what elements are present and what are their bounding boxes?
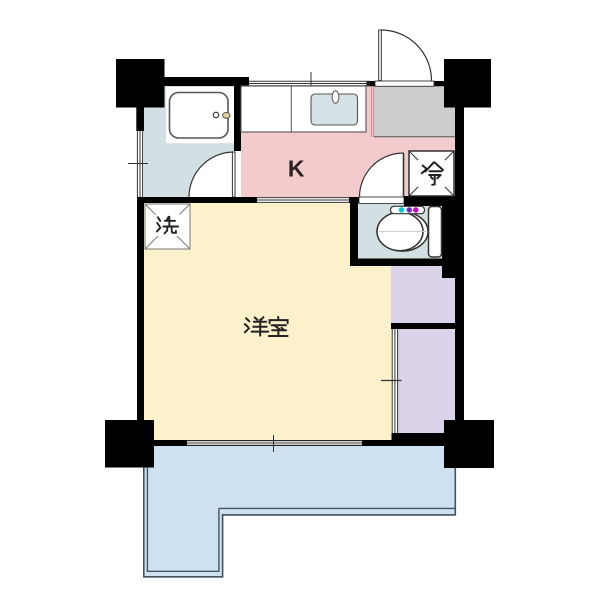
svg-text:K: K — [288, 156, 305, 182]
